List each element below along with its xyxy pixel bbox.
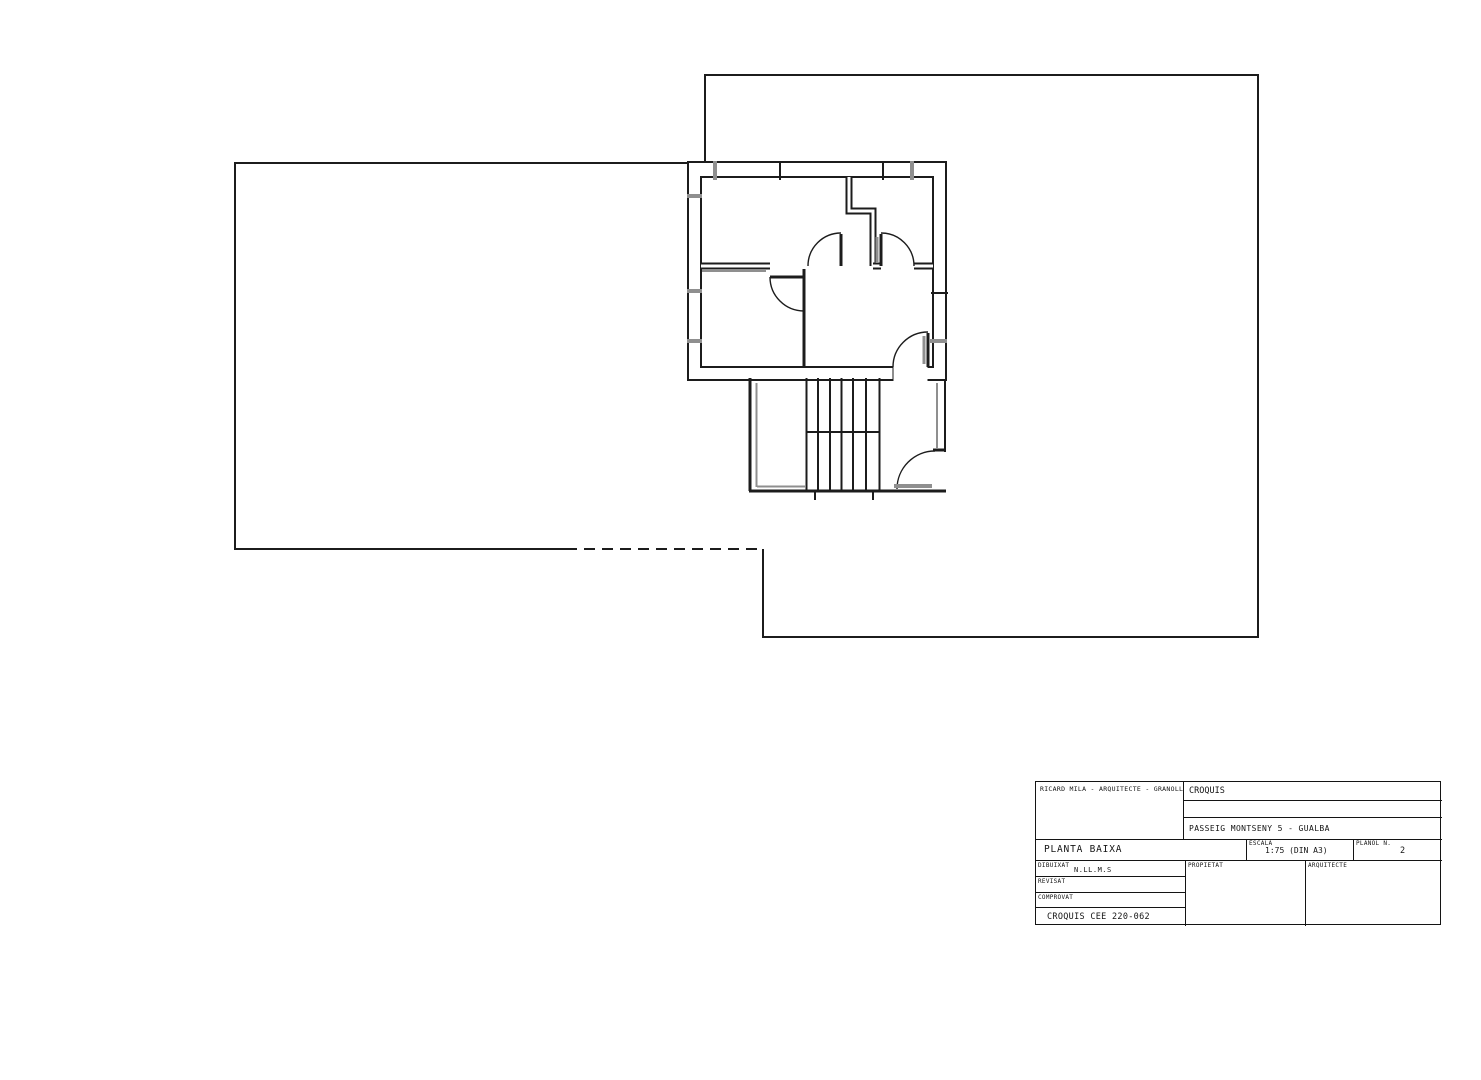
glazing-mark [910, 161, 914, 180]
glazing-mark [687, 339, 702, 343]
drawn-by-cell: DIBUIXAT N.LL.M.S [1036, 861, 1186, 877]
checked-cell: COMPROVAT [1036, 893, 1186, 908]
glazing-mark [687, 289, 702, 293]
title-block-empty-cell [1184, 801, 1442, 818]
plan-name: PLANTA BAIXA [1044, 844, 1122, 855]
owner-signature-cell: PROPIETAT [1186, 861, 1306, 926]
architect-signature-cell: ARQUITECTE [1306, 861, 1442, 926]
document-reference-cell: CROQUIS CEE 220-062 [1036, 908, 1186, 926]
document-type: CROQUIS [1189, 786, 1225, 796]
door-opening [893, 360, 928, 382]
project-address: PASSEIG MONTSENY 5 - GUALBA [1189, 824, 1330, 833]
sheet-number-label: PLANOL N. [1356, 840, 1391, 847]
glazing-mark [687, 194, 702, 198]
title-block-address-cell: PASSEIG MONTSENY 5 - GUALBA [1184, 818, 1442, 839]
title-block-firm-cell: RICARD MILA - ARQUITECTE - GRANOLLERS [1036, 782, 1184, 839]
revised-label: REVISAT [1038, 878, 1065, 885]
firm-name: RICARD MILA - ARQUITECTE - GRANOLLERS [1040, 785, 1184, 793]
title-block: RICARD MILA - ARQUITECTE - GRANOLLERS CR… [1035, 781, 1441, 925]
sheet-number-value: 2 [1400, 846, 1405, 856]
scale-cell: ESCALA 1:75 (DIN A3) [1246, 839, 1353, 861]
scale-value: 1:75 (DIN A3) [1265, 846, 1328, 855]
drawing-sheet: RICARD MILA - ARQUITECTE - GRANOLLERS CR… [0, 0, 1481, 1080]
glazing-mark [713, 161, 717, 180]
drawn-by-label: DIBUIXAT [1038, 862, 1069, 869]
architect-label: ARQUITECTE [1308, 862, 1347, 869]
title-block-doctype-cell: CROQUIS [1184, 782, 1442, 801]
plot-outline-left [235, 163, 688, 549]
drawn-by-value: N.LL.M.S [1074, 866, 1112, 874]
glazing-mark [930, 339, 947, 343]
checked-label: COMPROVAT [1038, 894, 1073, 901]
door-swing-arc [897, 451, 935, 489]
revised-cell: REVISAT [1036, 877, 1186, 893]
staircase [749, 378, 946, 500]
owner-label: PROPIETAT [1188, 862, 1223, 869]
plan-name-cell: PLANTA BAIXA [1036, 839, 1246, 861]
sheet-number-cell: PLANOL N. 2 [1353, 839, 1442, 861]
document-reference: CROQUIS CEE 220-062 [1047, 912, 1150, 922]
